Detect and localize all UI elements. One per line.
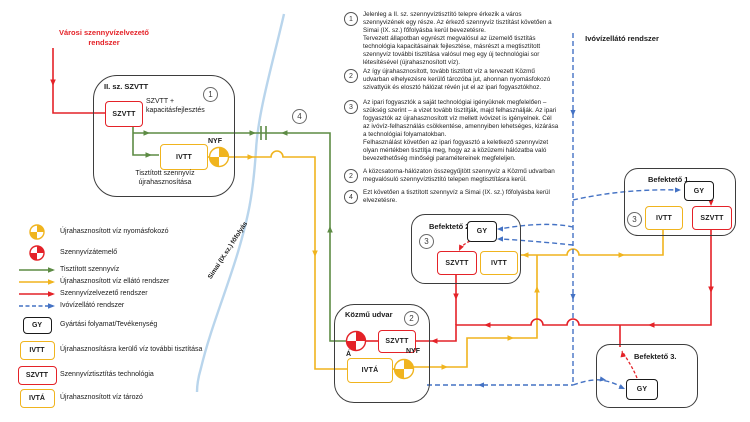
legend-label: Újrahasznosított víz ellátó rendszer xyxy=(60,278,169,286)
note-1-text: Jelenleg a II. sz. szennyvíztisztító tel… xyxy=(363,11,559,67)
legend-label: Szennyvíztisztítás technológia xyxy=(60,371,154,379)
gy-node-icon: GY xyxy=(23,317,52,334)
legend-item-booster: Újrahasznosított víz nyomásfokozó xyxy=(14,224,169,240)
legend-label: Újrahasznosított víz tározó xyxy=(60,394,143,402)
legend-item-szvtt: SZVTT Szennyvíztisztítás technológia xyxy=(14,366,154,385)
marker-4-river-outfall: 4 xyxy=(292,109,307,124)
note-1-number: 1 xyxy=(344,12,358,26)
legend-label: Ivóvízellátó rendszer xyxy=(60,302,124,310)
legend-label: Szennyvízátemelő xyxy=(60,249,117,257)
legend-item-ivtt: IVTT Újrahasznosításra kerülő víz tovább… xyxy=(14,341,202,360)
pump-yellow-icon xyxy=(14,224,60,240)
investor2-title: Befektető 2. xyxy=(429,222,472,231)
note-4-number: 2 xyxy=(344,169,358,183)
plant-title: II. sz. SZVTT xyxy=(104,82,148,91)
legend-label: Újrahasznosításra kerülő víz további tis… xyxy=(60,346,202,354)
water-reuse-diagram: Városi szennyvízelvezető rendszer Ivóvíz… xyxy=(0,0,750,422)
kozmu-nyf-label: NYF xyxy=(406,348,420,357)
pump-red-icon xyxy=(14,245,60,261)
river xyxy=(197,14,284,392)
legend-item-ivta: IVTÁ Újrahasznosított víz tározó xyxy=(14,389,143,408)
kozmu-ivta-node: IVTÁ xyxy=(347,358,393,383)
investor2-gy-node: GY xyxy=(467,221,497,242)
investor1-szvtt-node: SZVTT xyxy=(692,206,732,230)
green-line-icon xyxy=(14,265,60,275)
note-3: 3 Az ipari fogyasztók a saját technológi… xyxy=(344,99,559,163)
legend-label: Szennyvízelvezető rendszer xyxy=(60,290,148,298)
note-1: 1 Jelenleg a II. sz. szennyvíztisztító t… xyxy=(344,11,559,67)
note-3-text: Az ipari fogyasztók a saját technológiai… xyxy=(363,99,559,163)
plant-caption: Tisztított szennyvíz újrahasznosítása xyxy=(112,170,218,188)
legend-label: Tisztított szennyvíz xyxy=(60,266,119,274)
note-2-text: Az így újrahasznosított, tovább tisztíto… xyxy=(363,68,559,92)
szvtt-node-icon: SZVTT xyxy=(18,366,57,385)
plant-desc: SZVTT + kapacitásfejlesztés xyxy=(146,98,228,116)
note-2: 2 Az így újrahasznosított, tovább tisztí… xyxy=(344,68,559,92)
note-3-number: 3 xyxy=(344,100,358,114)
red-line-icon xyxy=(14,289,60,299)
yellow-line-icon xyxy=(14,277,60,287)
marker-3-investor1: 3 xyxy=(627,212,642,227)
marker-3-investor2: 3 xyxy=(419,234,434,249)
note-4-text: A közcsatorna-hálózaton összegyűjtött sz… xyxy=(363,168,559,184)
plant-nyf-label: NYF xyxy=(208,138,222,147)
investor3-gy-node: GY xyxy=(626,379,658,400)
investor1-gy-node: GY xyxy=(684,181,714,201)
legend-label: Újrahasznosított víz nyomásfokozó xyxy=(60,228,169,236)
note-5: 4 Ezt követően a tisztított szennyvíz a … xyxy=(344,189,559,205)
legend-item-treated: Tisztított szennyvíz xyxy=(14,265,119,275)
kozmu-title: Közmű udvar xyxy=(345,310,393,319)
blue-dashed-line-icon xyxy=(14,301,60,311)
ivta-node-icon: IVTÁ xyxy=(20,389,55,408)
marker-2-kozmu: 2 xyxy=(404,311,419,326)
legend-item-reuse: Újrahasznosított víz ellátó rendszer xyxy=(14,277,169,287)
legend-label: Gyártási folyamat/Tevékenység xyxy=(60,321,157,329)
investor1-ivtt-node: IVTT xyxy=(645,206,683,230)
legend-item-lift-pump: Szennyvízátemelő xyxy=(14,245,117,261)
ivtt-node-icon: IVTT xyxy=(20,341,55,360)
note-4: 2 A közcsatorna-hálózaton összegyűjtött … xyxy=(344,168,559,184)
note-2-number: 2 xyxy=(344,69,358,83)
note-5-number: 4 xyxy=(344,190,358,204)
legend-item-sewage: Szennyvízelvezető rendszer xyxy=(14,289,148,299)
legend-item-gy: GY Gyártási folyamat/Tevékenység xyxy=(14,317,157,334)
investor2-ivtt-node: IVTT xyxy=(480,251,518,275)
city-sewer-label: Városi szennyvízelvezető rendszer xyxy=(45,28,163,48)
investor2-szvtt-node: SZVTT xyxy=(437,251,477,275)
plant-szvtt-node: SZVTT xyxy=(105,101,143,127)
note-5-text: Ezt követően a tisztított szennyvíz a Si… xyxy=(363,189,559,205)
plant-ivtt-node: IVTT xyxy=(160,144,208,170)
investor3-title: Befektető 3. xyxy=(634,352,677,361)
drinking-system-label: Ivóvízellátó rendszer xyxy=(578,34,666,44)
legend-item-drinking: Ivóvízellátó rendszer xyxy=(14,301,124,311)
